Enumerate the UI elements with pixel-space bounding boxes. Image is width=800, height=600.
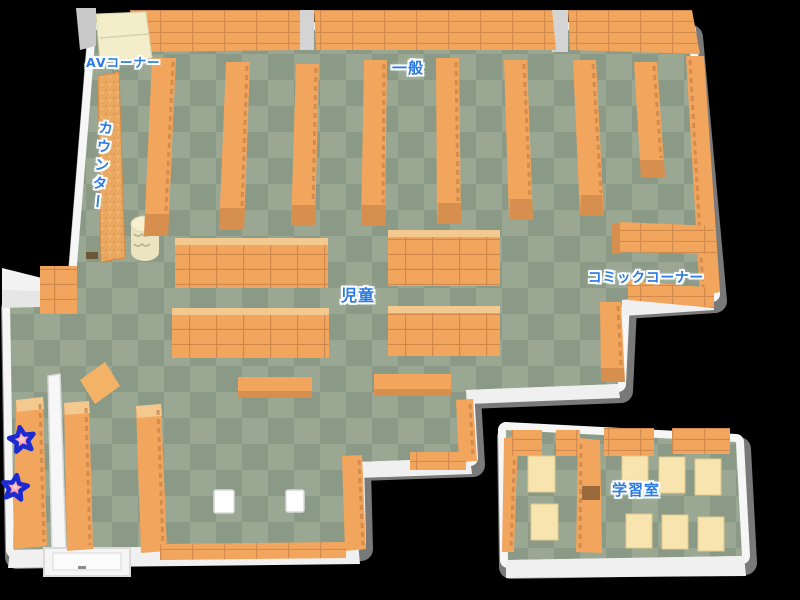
divider-notch: [582, 486, 600, 500]
library-floor-map: AVコーナー カウンター 一般 児童 コミックコーナー 学習室: [0, 0, 800, 600]
shelf-end: [612, 224, 621, 254]
stool: [214, 490, 234, 513]
study-table: [662, 515, 688, 549]
label-av-corner: AVコーナー: [86, 56, 161, 69]
top-wall-shelves: [130, 10, 700, 54]
low-bench: [374, 374, 451, 389]
door-handle: [78, 566, 86, 569]
entrance-door[interactable]: [44, 548, 130, 576]
wall-gap: [300, 10, 314, 50]
study-table: [528, 456, 555, 492]
label-comic-corner: コミックコーナー: [588, 271, 704, 285]
stool: [286, 490, 304, 512]
study-room: [502, 428, 746, 578]
floor-map-canvas: [0, 0, 800, 600]
study-table: [531, 504, 558, 540]
label-children: 児童: [341, 288, 375, 305]
study-table: [695, 459, 721, 495]
counter-item: [86, 252, 98, 259]
study-table: [698, 517, 724, 551]
low-bench: [238, 377, 312, 391]
bookshelf: [13, 397, 47, 549]
study-table: [626, 514, 652, 548]
label-general: 一般: [392, 61, 424, 77]
study-table: [659, 457, 685, 493]
label-study-room: 学習室: [612, 483, 660, 499]
wall-corner: [76, 8, 96, 50]
